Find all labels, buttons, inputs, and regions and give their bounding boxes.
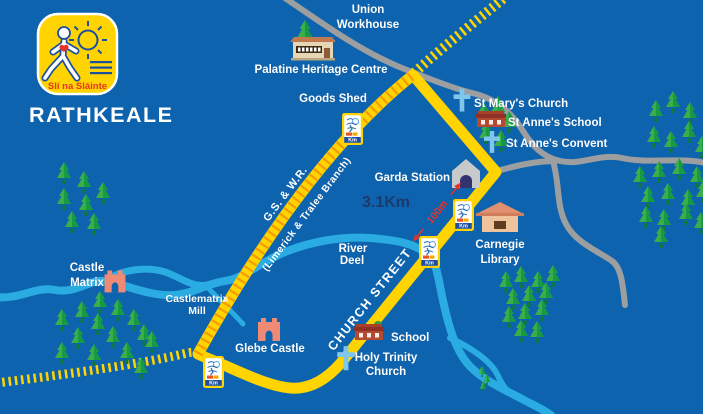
region-title: RATHKEALE bbox=[29, 103, 173, 127]
palatine-heritage-centre-icon bbox=[290, 37, 336, 61]
label-holy-trinity-line1: Holy Trinity bbox=[355, 352, 418, 364]
km-marker-goods-shed: Km bbox=[342, 113, 363, 145]
km-marker-label: Km bbox=[425, 261, 434, 267]
label-st-marys-church: St Mary's Church bbox=[474, 98, 568, 110]
label-river-line2: Deel bbox=[340, 255, 364, 267]
label-school: School bbox=[391, 332, 429, 344]
label-castle-matrix-line1: Castle bbox=[70, 262, 105, 274]
km-marker-lower-church-street: Km bbox=[419, 236, 440, 268]
label-garda-station: Garda Station bbox=[375, 172, 450, 184]
label-palatine-heritage-centre: Palatine Heritage Centre bbox=[255, 64, 388, 76]
km-marker-label: Km bbox=[348, 138, 357, 144]
km-marker-label: Km bbox=[209, 381, 218, 387]
label-carnegie-line1: Carnegie bbox=[475, 239, 524, 251]
km-marker-south-west: Km bbox=[203, 356, 224, 388]
label-carnegie-line2: Library bbox=[481, 254, 521, 266]
label-river-line1: River bbox=[339, 243, 368, 255]
rathkeale-walking-route-map: Km Km Km Km 100m G.S. & W.R. (Limerick &… bbox=[0, 0, 703, 414]
label-glebe-castle: Glebe Castle bbox=[235, 343, 305, 355]
label-st-annes-convent: St Anne's Convent bbox=[506, 138, 608, 150]
label-st-annes-school: St Anne's School bbox=[508, 117, 602, 129]
logo-text: Slí na Sláinte bbox=[48, 81, 107, 92]
sli-na-slainte-logo: Slí na Sláinte bbox=[38, 14, 117, 94]
label-castlematrix-mill-line1: Castlematrix bbox=[165, 293, 228, 305]
km-marker-label: Km bbox=[459, 224, 468, 230]
label-castle-matrix-line2: Matrix bbox=[70, 277, 104, 289]
map-canvas: Km Km Km Km 100m G.S. & W.R. (Limerick &… bbox=[0, 0, 703, 414]
label-holy-trinity-line2: Church bbox=[366, 366, 406, 378]
route-length-label: 3.1Km bbox=[362, 194, 410, 211]
speed-lines-icon bbox=[90, 61, 112, 74]
label-union-workhouse-line1: Union bbox=[352, 4, 385, 16]
label-union-workhouse-line2: Workhouse bbox=[337, 19, 399, 31]
km-marker-upper-church-street: Km bbox=[453, 199, 474, 231]
label-goods-shed: Goods Shed bbox=[299, 93, 367, 105]
label-castlematrix-mill-line2: Mill bbox=[188, 305, 206, 317]
